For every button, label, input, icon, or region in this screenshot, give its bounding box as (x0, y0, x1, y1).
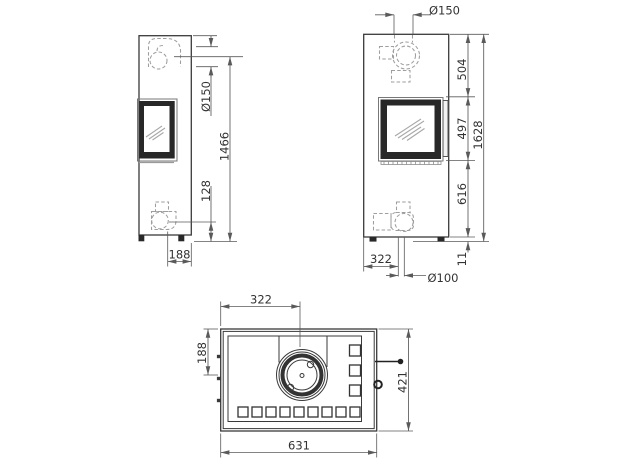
front-door-to-base-label: 616 (455, 183, 469, 205)
stove-technical-drawing: Ø150 1466 128 188 (0, 0, 624, 460)
side-foot-right (178, 235, 184, 241)
side-intake-depth-label: 188 (169, 248, 191, 262)
front-top-to-door-label: 504 (455, 59, 469, 81)
front-foot-height-label: 11 (455, 252, 469, 267)
front-intake-offset-label: 322 (370, 252, 392, 266)
side-foot-left (139, 235, 145, 241)
side-intake-height-label: 128 (199, 180, 213, 202)
top-depth-label: 421 (396, 371, 410, 393)
front-flue-diameter-label: Ø150 (429, 4, 460, 18)
front-door (379, 98, 449, 165)
front-view: Ø150 504 497 616 11 1628 322 (364, 4, 489, 286)
top-flue-offset-y-label: 188 (195, 342, 209, 364)
front-foot-left (370, 237, 377, 242)
front-foot-right (438, 237, 445, 242)
side-view: Ø150 1466 128 188 (138, 36, 244, 267)
front-intake-diameter-label: Ø100 (428, 271, 459, 285)
drawing-svg: Ø150 1466 128 188 (0, 0, 624, 460)
front-door-height-label: 497 (455, 118, 469, 140)
top-flue-offset-x-label: 322 (250, 293, 272, 307)
side-flue-diameter-label: Ø150 (199, 81, 213, 112)
front-door-vent-grille (381, 162, 441, 165)
top-width-label: 631 (288, 439, 310, 453)
top-vent-row (238, 407, 360, 417)
top-view: 322 188 421 631 (195, 293, 413, 458)
side-door (138, 99, 178, 163)
front-total-height-label: 1628 (471, 120, 485, 149)
front-door-hinge-strip (443, 101, 448, 157)
top-vent-column (350, 345, 361, 396)
side-flue-height-label: 1466 (218, 132, 232, 161)
